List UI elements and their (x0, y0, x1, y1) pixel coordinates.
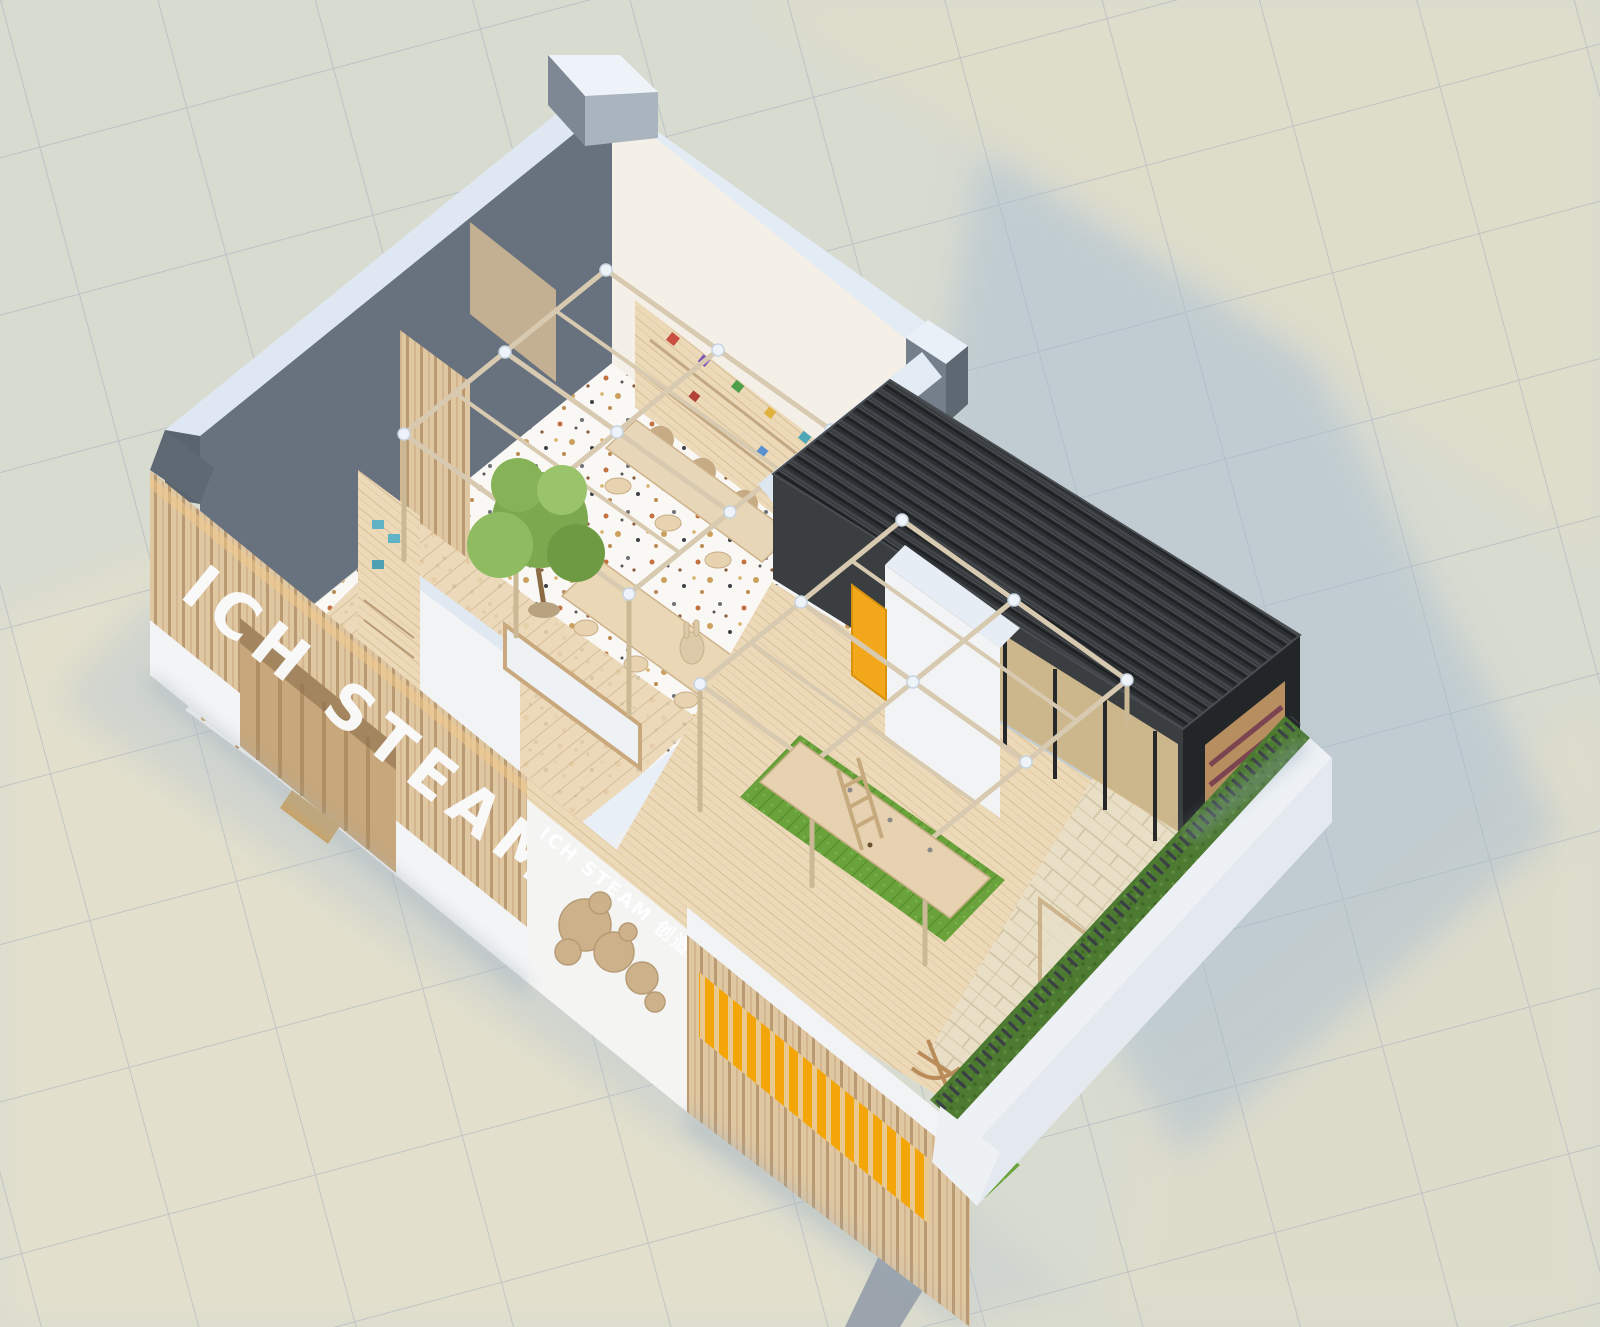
render-canvas: ICH STEAM ICH STEAM 创造力工坊 (0, 0, 1600, 1327)
isometric-render: ICH STEAM ICH STEAM 创造力工坊 (0, 0, 1600, 1327)
